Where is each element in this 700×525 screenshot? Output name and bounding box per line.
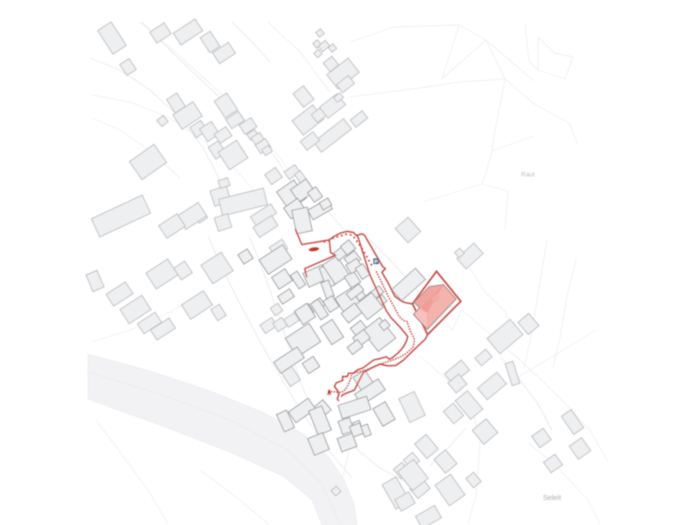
svg-text:Seleit: Seleit xyxy=(543,493,561,502)
svg-text:Raut: Raut xyxy=(521,172,535,179)
